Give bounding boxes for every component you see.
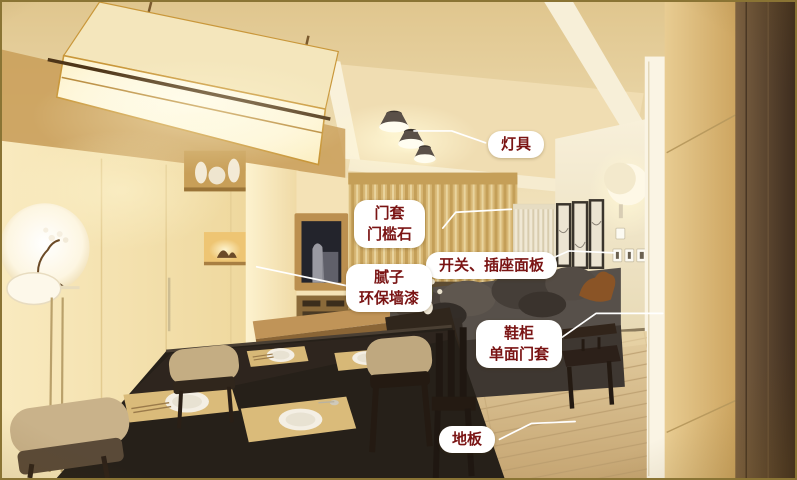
label-switch-socket: 开关、插座面板: [426, 252, 557, 279]
label-shoe-cabinet: 鞋柜 单面门套: [476, 320, 562, 368]
label-lamps: 灯具: [488, 131, 544, 158]
label-lamps-line1: 灯具: [501, 134, 531, 155]
annotated-room-photo: 灯具 门套 门槛石 开关、插座面板 腻子 环保墙漆 鞋柜 单面门套 地板: [0, 0, 797, 480]
label-door-casing-line2: 门槛石: [367, 224, 412, 245]
label-shoe-cabinet-line2: 单面门套: [489, 344, 549, 365]
label-door-casing: 门套 门槛石: [354, 200, 425, 248]
label-floor: 地板: [439, 426, 495, 453]
label-door-casing-line1: 门套: [367, 203, 412, 224]
label-putty-paint-line2: 环保墙漆: [359, 288, 419, 309]
label-switch-socket-line1: 开关、插座面板: [439, 255, 544, 276]
label-shoe-cabinet-line1: 鞋柜: [489, 323, 549, 344]
label-floor-line1: 地板: [452, 429, 482, 450]
label-putty-paint: 腻子 环保墙漆: [346, 264, 432, 312]
label-putty-paint-line1: 腻子: [359, 267, 419, 288]
